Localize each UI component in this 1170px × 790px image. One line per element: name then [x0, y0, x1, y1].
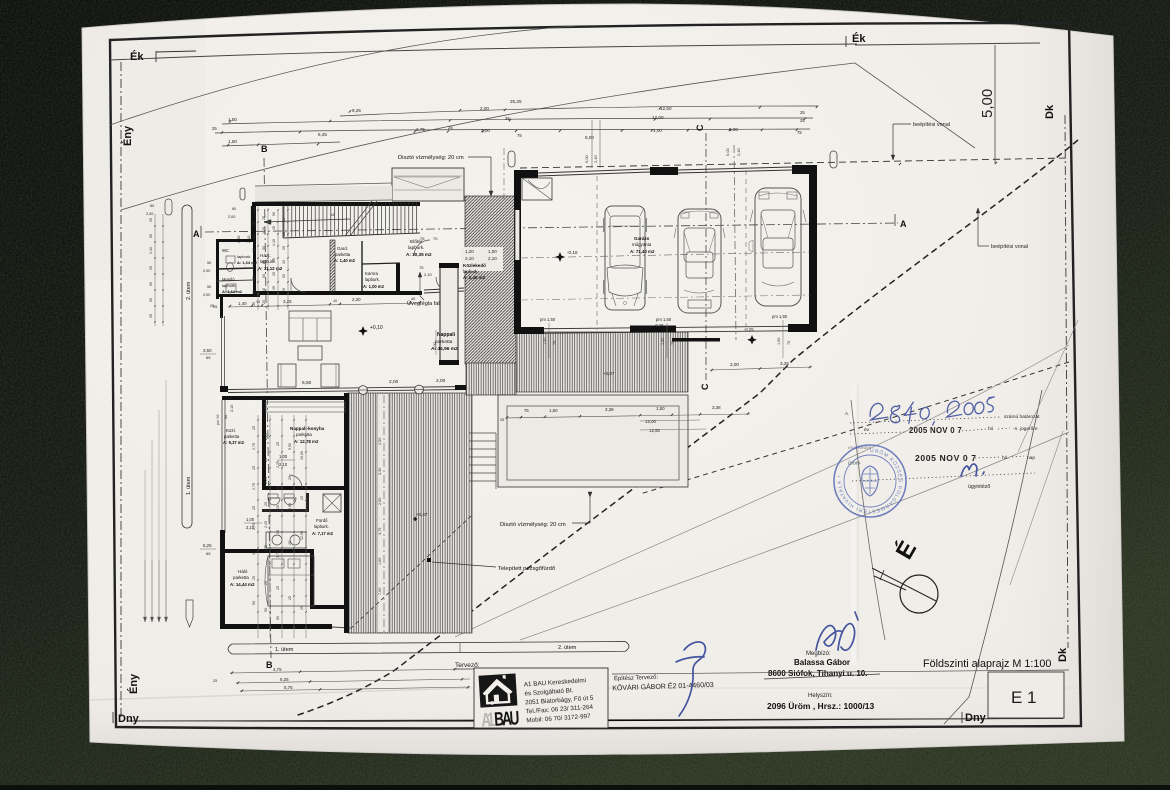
- svg-text:65: 65: [206, 355, 211, 360]
- svg-text:25: 25: [252, 222, 256, 226]
- svg-text:25: 25: [272, 272, 276, 276]
- svg-text:Földszinti alaprajz M 1:100: Földszinti alaprajz M 1:100: [923, 658, 1051, 670]
- svg-text:25: 25: [288, 596, 292, 600]
- svg-text:25: 25: [800, 118, 805, 123]
- svg-text:1,50: 1,50: [228, 117, 237, 122]
- svg-text:5,75: 5,75: [284, 685, 293, 690]
- svg-text:hó: hó: [988, 426, 994, 432]
- svg-text:1,50: 1,50: [549, 408, 558, 413]
- svg-text:2005 NOV 0 7: 2005 NOV 0 7: [915, 453, 977, 463]
- svg-text:2,50: 2,50: [378, 498, 382, 505]
- svg-text:2,25: 2,25: [264, 477, 268, 484]
- svg-text:25: 25: [149, 266, 153, 270]
- svg-text:1,10: 1,10: [149, 247, 153, 254]
- svg-text:25,25: 25,25: [510, 99, 522, 104]
- svg-text:90: 90: [149, 282, 153, 286]
- svg-text:A: 2,40 m2: A: 2,40 m2: [463, 275, 486, 280]
- svg-text:2,75: 2,75: [252, 523, 256, 530]
- svg-text:Ény: Ény: [121, 125, 134, 146]
- svg-text:1,25: 1,25: [262, 227, 266, 234]
- svg-text:A: 1,12 m2: A: 1,12 m2: [222, 289, 243, 294]
- svg-text:25: 25: [282, 288, 286, 292]
- svg-text:1,00: 1,00: [279, 454, 288, 459]
- svg-text:12,50: 12,50: [660, 106, 672, 111]
- svg-text:4,75: 4,75: [273, 667, 282, 672]
- svg-text:lapburk.: lapburk.: [222, 283, 236, 288]
- svg-text:75: 75: [420, 236, 425, 241]
- svg-text:50: 50: [262, 274, 266, 278]
- svg-text:25: 25: [149, 218, 153, 222]
- svg-text:Közl.: Közl.: [226, 428, 236, 433]
- svg-text:75: 75: [517, 133, 522, 138]
- svg-text:5,50: 5,50: [288, 503, 292, 510]
- svg-text:25: 25: [276, 442, 280, 446]
- svg-text:Telepített pezsgőfürdő: Telepített pezsgőfürdő: [498, 566, 555, 572]
- svg-text:12,50: 12,50: [300, 531, 304, 540]
- svg-text:75: 75: [787, 341, 791, 345]
- svg-text:pm 1,50: pm 1,50: [656, 317, 672, 322]
- svg-text:5,25: 5,25: [280, 677, 289, 682]
- svg-text:2,00: 2,00: [481, 128, 490, 133]
- svg-text:25: 25: [252, 276, 256, 280]
- svg-text:26: 26: [505, 116, 510, 121]
- svg-text:10: 10: [333, 299, 337, 303]
- svg-text:+0,10: +0,10: [370, 325, 383, 331]
- svg-text:25: 25: [213, 679, 217, 683]
- svg-text:Nappali: Nappali: [437, 332, 456, 338]
- svg-text:C: C: [700, 383, 710, 390]
- svg-text:Fürdő: Fürdő: [316, 518, 328, 523]
- svg-text:Disztó vízmélység: 20 cm: Disztó vízmélység: 20 cm: [398, 155, 464, 161]
- svg-text:25: 25: [252, 466, 256, 470]
- svg-text:BAU: BAU: [494, 707, 521, 731]
- svg-text:Dk: Dk: [1044, 104, 1056, 119]
- svg-text:parketta: parketta: [435, 339, 453, 345]
- svg-text:1,00: 1,00: [378, 558, 382, 565]
- svg-text:1,40: 1,40: [238, 301, 247, 306]
- svg-text:1,10: 1,10: [272, 239, 276, 246]
- svg-text:6,50: 6,50: [302, 380, 312, 386]
- svg-text:A: 1,00 m2: A: 1,00 m2: [363, 284, 385, 289]
- svg-text:3,30: 3,30: [378, 468, 382, 475]
- svg-text:25: 25: [300, 496, 304, 500]
- svg-text:beépítési vonal: beépítési vonal: [913, 122, 950, 128]
- svg-text:1,50: 1,50: [656, 406, 665, 411]
- svg-text:25: 25: [288, 476, 292, 480]
- svg-text:90: 90: [224, 415, 228, 419]
- svg-text:25: 25: [276, 486, 280, 490]
- svg-text:25: 25: [210, 304, 214, 308]
- svg-text:2,10: 2,10: [247, 236, 251, 243]
- svg-text:25: 25: [288, 541, 292, 545]
- svg-text:50: 50: [276, 616, 280, 620]
- svg-text:65: 65: [206, 551, 211, 556]
- svg-text:A: 10,35 m2: A: 10,35 m2: [406, 252, 432, 257]
- svg-text:3,50: 3,50: [203, 348, 212, 353]
- svg-text:pm 1,50: pm 1,50: [772, 314, 788, 319]
- svg-text:6,00: 6,00: [584, 154, 589, 163]
- svg-text:2,00: 2,00: [436, 378, 446, 384]
- svg-text:2,00: 2,00: [203, 269, 210, 273]
- svg-text:-0,25: -0,25: [654, 323, 664, 328]
- svg-text:25: 25: [272, 226, 276, 230]
- svg-text:12,00: 12,00: [652, 115, 664, 120]
- svg-text:75: 75: [553, 341, 557, 345]
- svg-text:25: 25: [149, 314, 153, 318]
- svg-text:1,00: 1,00: [246, 517, 255, 522]
- svg-text:25: 25: [262, 300, 266, 304]
- svg-text:50: 50: [264, 608, 268, 612]
- svg-text:számú határozat: számú határozat: [1004, 414, 1040, 420]
- svg-text:25: 25: [264, 502, 268, 506]
- svg-text:Garázs: Garázs: [634, 236, 650, 241]
- svg-text:2,00: 2,00: [146, 212, 153, 216]
- svg-text:lapburk.: lapburk.: [237, 254, 251, 259]
- svg-text:2,10: 2,10: [230, 405, 234, 412]
- svg-text:1. ütem: 1. ütem: [186, 476, 192, 495]
- svg-text:pm 1,50: pm 1,50: [540, 317, 556, 322]
- svg-text:A: 11,12 m2: A: 11,12 m2: [258, 266, 283, 271]
- svg-text:2005 NOV 0 7: 2005 NOV 0 7: [909, 426, 962, 435]
- svg-text:Házt.: Házt.: [260, 253, 271, 258]
- svg-text:25: 25: [252, 506, 256, 510]
- svg-text:25: 25: [262, 216, 266, 220]
- svg-text:1,50: 1,50: [543, 338, 547, 345]
- svg-text:Üvegtégla fal: Üvegtégla fal: [407, 300, 440, 307]
- svg-text:A: 9,37 m2: A: 9,37 m2: [223, 440, 245, 445]
- svg-text:50: 50: [252, 601, 256, 605]
- svg-text:70: 70: [433, 236, 438, 241]
- svg-text:Gard.: Gard.: [337, 246, 348, 251]
- svg-text:Disztó vízmélység: 20 cm: Disztó vízmélység: 20 cm: [500, 522, 566, 528]
- svg-text:Balassa Gábor: Balassa Gábor: [794, 658, 850, 667]
- svg-text:40: 40: [411, 297, 415, 301]
- svg-text:25: 25: [252, 551, 256, 555]
- svg-text:50: 50: [282, 218, 286, 222]
- svg-text:12,00: 12,00: [645, 419, 657, 424]
- svg-text:25: 25: [252, 576, 256, 580]
- svg-text:25: 25: [276, 586, 280, 590]
- svg-text:2,10: 2,10: [279, 462, 288, 467]
- svg-text:Közlekedő: Közlekedő: [463, 263, 486, 268]
- svg-text:25: 25: [300, 606, 304, 610]
- svg-text:év: év: [864, 427, 870, 433]
- svg-text:pm:36: pm:36: [216, 414, 220, 425]
- svg-text:-0,10: -0,10: [567, 250, 578, 255]
- svg-text:parketta: parketta: [233, 575, 249, 580]
- svg-text:2. ütem: 2. ütem: [558, 645, 577, 651]
- svg-text:2,75: 2,75: [252, 483, 256, 490]
- svg-text:parketta: parketta: [224, 434, 240, 439]
- svg-text:Ék: Ék: [130, 50, 144, 63]
- svg-text:75: 75: [797, 130, 802, 135]
- svg-text:3,75: 3,75: [264, 545, 268, 552]
- svg-text:5,00: 5,00: [585, 135, 594, 140]
- svg-text:nap: nap: [1027, 456, 1035, 461]
- svg-text:25: 25: [282, 246, 286, 250]
- svg-text:parketta: parketta: [335, 252, 351, 257]
- svg-text:2,10: 2,10: [488, 256, 497, 261]
- svg-text:25: 25: [800, 110, 805, 115]
- svg-text:3,38: 3,38: [712, 405, 721, 410]
- svg-text:2,00: 2,00: [203, 293, 210, 297]
- svg-text:50: 50: [252, 234, 256, 238]
- svg-text:A: A: [900, 219, 907, 229]
- svg-text:1,20: 1,20: [465, 249, 474, 254]
- svg-text:A: A: [193, 229, 200, 239]
- svg-text:10: 10: [282, 260, 286, 264]
- svg-text:1. ütem: 1. ütem: [275, 647, 294, 653]
- svg-text:2,10: 2,10: [424, 272, 433, 277]
- svg-text:50: 50: [262, 246, 266, 250]
- svg-text:A: 7,17 m2: A: 7,17 m2: [312, 531, 334, 536]
- svg-text:2,30: 2,30: [352, 297, 361, 302]
- svg-text:5,00: 5,00: [725, 147, 730, 156]
- svg-text:3,75: 3,75: [276, 551, 280, 558]
- svg-text:lapburk.: lapburk.: [365, 277, 380, 282]
- svg-text:+0,07: +0,07: [603, 371, 615, 376]
- svg-text:50: 50: [149, 298, 153, 302]
- svg-text:A.: A.: [845, 411, 849, 416]
- svg-text:25: 25: [272, 286, 276, 290]
- svg-text:E 1: E 1: [1011, 688, 1037, 707]
- svg-text:ügyintéző: ügyintéző: [968, 484, 990, 490]
- svg-text:1,50: 1,50: [228, 139, 237, 144]
- svg-text:10: 10: [252, 248, 256, 252]
- svg-text:75: 75: [524, 408, 529, 413]
- svg-text:2,25: 2,25: [276, 505, 280, 512]
- svg-text:Mosdó: Mosdó: [222, 277, 235, 282]
- svg-text:2,10: 2,10: [465, 256, 474, 261]
- svg-text:18: 18: [330, 212, 335, 217]
- svg-text:hó.: hó.: [1002, 455, 1009, 461]
- svg-text:2,75: 2,75: [416, 127, 425, 132]
- svg-text:5,50: 5,50: [288, 443, 292, 450]
- svg-text:1,25: 1,25: [252, 207, 256, 214]
- svg-text:Háló: Háló: [238, 569, 248, 574]
- svg-text:Ék: Ék: [852, 32, 866, 45]
- svg-text:2,00: 2,00: [228, 215, 235, 219]
- svg-text:B: B: [261, 144, 268, 154]
- svg-text:C: C: [695, 124, 705, 131]
- svg-text:B: B: [266, 660, 273, 670]
- svg-text:műgyanta: műgyanta: [632, 242, 652, 247]
- svg-text:50: 50: [272, 258, 276, 262]
- svg-text:50: 50: [272, 212, 276, 216]
- svg-text:25: 25: [212, 126, 217, 131]
- svg-text:parketta: parketta: [296, 432, 312, 437]
- svg-text:2,40: 2,40: [237, 236, 241, 243]
- svg-text:2,40: 2,40: [593, 154, 598, 163]
- svg-text:2,75: 2,75: [252, 443, 256, 450]
- svg-text:Nappali-konyha: Nappali-konyha: [290, 426, 325, 431]
- svg-text:2,00: 2,00: [389, 379, 399, 385]
- svg-text:Dk: Dk: [1057, 647, 1069, 662]
- svg-text:+0,47: +0,47: [416, 512, 428, 517]
- svg-text:2,00: 2,00: [730, 362, 739, 367]
- svg-text:1,50: 1,50: [777, 338, 781, 345]
- svg-text:5,25: 5,25: [203, 543, 212, 548]
- svg-text:2,00: 2,00: [480, 106, 489, 111]
- svg-text:2,25: 2,25: [276, 461, 280, 468]
- svg-text:5,00: 5,00: [729, 127, 738, 132]
- svg-text:A: 14,44 m2: A: 14,44 m2: [230, 582, 255, 587]
- svg-text:Kamra: Kamra: [365, 271, 378, 276]
- svg-text:25: 25: [264, 458, 268, 462]
- svg-text:Üröm.: Üröm.: [848, 459, 862, 467]
- svg-text:2096 Üröm , Hrsz.: 1000/13: 2096 Üröm , Hrsz.: 1000/13: [767, 701, 875, 711]
- svg-text:25: 25: [276, 530, 280, 534]
- svg-text:10,00: 10,00: [300, 451, 304, 460]
- svg-text:12,50: 12,50: [649, 428, 661, 433]
- svg-text:A: 1,40 m2: A: 1,40 m2: [334, 258, 356, 263]
- svg-text:3,25: 3,25: [283, 299, 292, 304]
- svg-text:A: 71,40 m2: A: 71,40 m2: [630, 249, 655, 254]
- svg-text:60: 60: [232, 207, 236, 211]
- svg-text:3,38: 3,38: [605, 407, 614, 412]
- svg-text:50: 50: [282, 274, 286, 278]
- svg-text:75: 75: [419, 265, 424, 270]
- svg-text:lapburk.: lapburk.: [314, 524, 329, 529]
- svg-text:2,40: 2,40: [736, 147, 741, 156]
- svg-text:6,25: 6,25: [318, 132, 327, 137]
- svg-text:Dny: Dny: [965, 712, 987, 724]
- svg-text:50: 50: [149, 234, 153, 238]
- svg-text:-0,25: -0,25: [744, 327, 754, 332]
- svg-text:90: 90: [252, 262, 256, 266]
- svg-text:Ény: Ény: [127, 673, 140, 694]
- svg-text:50: 50: [207, 285, 211, 289]
- svg-text:25: 25: [262, 260, 266, 264]
- svg-text:2,25: 2,25: [264, 521, 268, 528]
- svg-text:-n. jogerőre: -n. jogerőre: [1013, 426, 1038, 432]
- svg-text:60: 60: [150, 204, 154, 208]
- svg-text:A: 12,78 m2: A: 12,78 m2: [294, 439, 319, 444]
- svg-text:25: 25: [500, 418, 504, 422]
- svg-text:Helyszín:: Helyszín:: [808, 693, 833, 699]
- svg-text:50: 50: [207, 261, 211, 265]
- svg-text:25: 25: [282, 232, 286, 236]
- svg-text:1,00: 1,00: [653, 128, 662, 133]
- svg-text:1,50: 1,50: [661, 338, 665, 345]
- svg-text:25: 25: [252, 426, 256, 430]
- svg-text:50: 50: [252, 290, 256, 294]
- svg-text:2. ütem: 2. ütem: [186, 281, 192, 300]
- svg-text:2,25: 2,25: [264, 433, 268, 440]
- svg-text:7,00: 7,00: [378, 588, 382, 595]
- svg-text:10: 10: [262, 288, 266, 292]
- svg-text:Megbízó:: Megbízó:: [806, 651, 831, 657]
- svg-text:3,75: 3,75: [378, 528, 382, 535]
- svg-text:25: 25: [264, 581, 268, 585]
- svg-text:Dny: Dny: [118, 713, 140, 725]
- svg-text:1,00: 1,00: [488, 249, 497, 254]
- svg-text:5,00: 5,00: [979, 89, 996, 118]
- svg-text:3,25: 3,25: [780, 361, 789, 366]
- svg-text:25: 25: [448, 125, 453, 130]
- svg-text:2,50: 2,50: [378, 438, 382, 445]
- svg-text:9,25: 9,25: [352, 108, 361, 113]
- svg-text:WC: WC: [222, 248, 229, 253]
- svg-text:beépítési vonal: beépítési vonal: [991, 244, 1028, 250]
- svg-text:25: 25: [252, 302, 256, 306]
- svg-text:lapburk.: lapburk.: [463, 269, 479, 274]
- svg-text:A: 44,96 m2: A: 44,96 m2: [431, 346, 458, 352]
